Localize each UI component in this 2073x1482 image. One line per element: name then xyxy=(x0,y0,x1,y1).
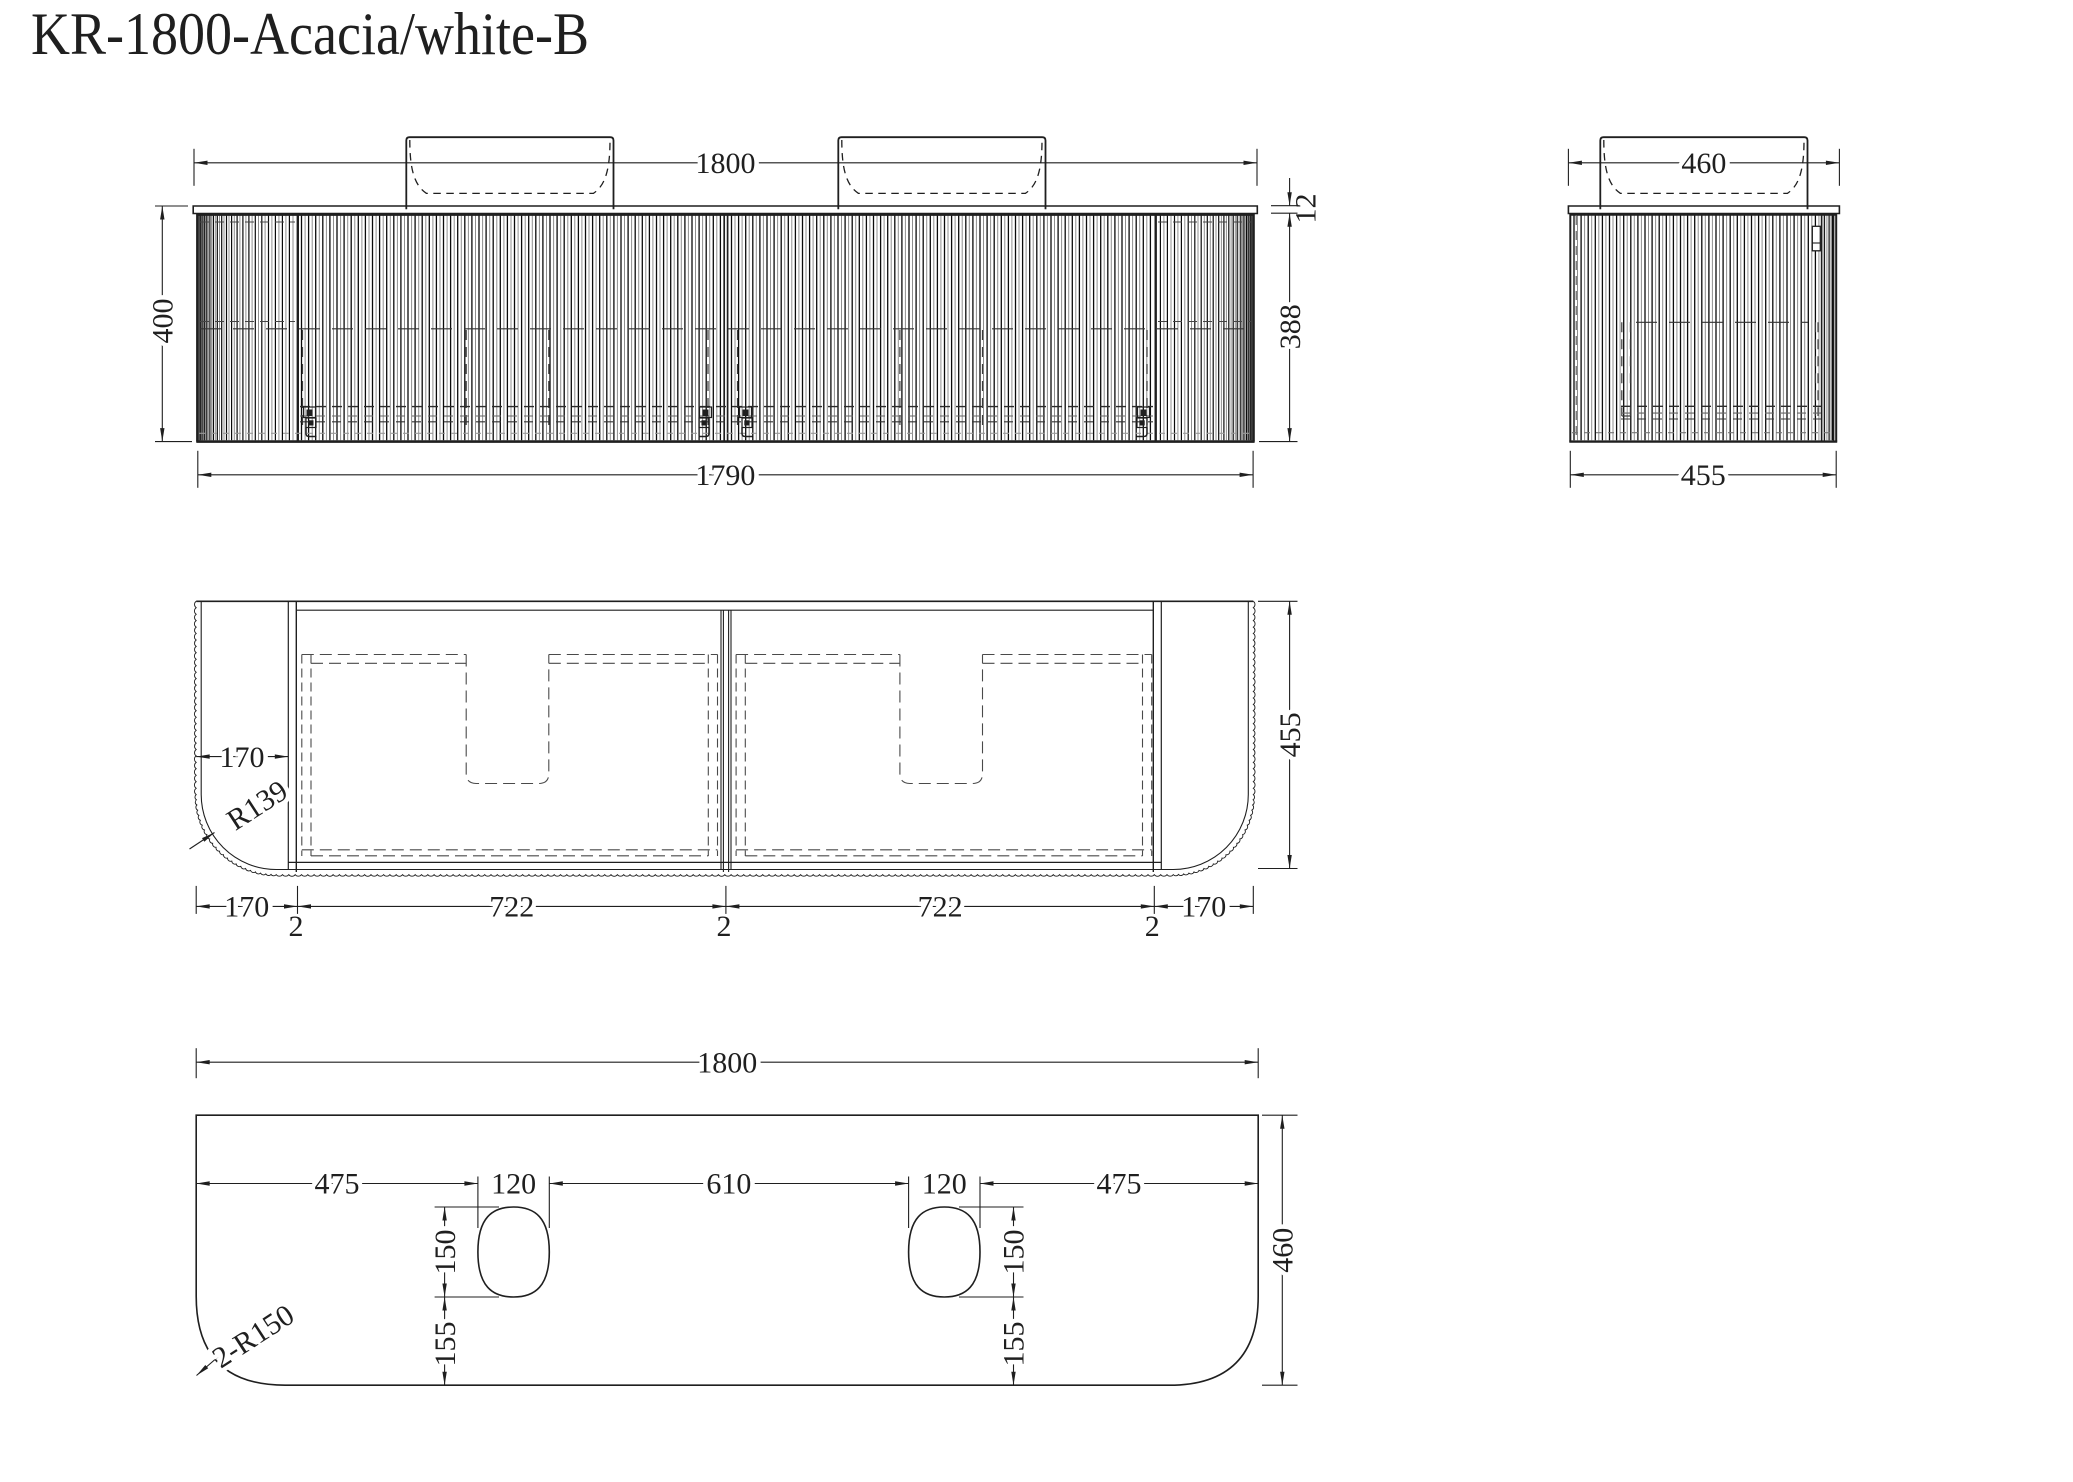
svg-text:1800: 1800 xyxy=(696,147,756,180)
svg-text:12: 12 xyxy=(1290,194,1323,224)
svg-text:475: 475 xyxy=(1097,1168,1142,1201)
svg-text:170: 170 xyxy=(220,741,265,774)
svg-text:155: 155 xyxy=(429,1322,462,1367)
svg-text:455: 455 xyxy=(1274,712,1307,757)
svg-text:1800: 1800 xyxy=(697,1046,757,1079)
svg-text:460: 460 xyxy=(1681,147,1726,180)
svg-text:475: 475 xyxy=(315,1168,360,1201)
svg-text:120: 120 xyxy=(922,1168,967,1201)
svg-text:155: 155 xyxy=(998,1322,1031,1367)
svg-text:455: 455 xyxy=(1681,459,1726,492)
svg-text:150: 150 xyxy=(429,1230,462,1275)
svg-text:150: 150 xyxy=(998,1230,1031,1275)
svg-text:KR-1800-Acacia/white-B: KR-1800-Acacia/white-B xyxy=(31,1,589,67)
svg-text:170: 170 xyxy=(224,891,269,924)
svg-text:170: 170 xyxy=(1181,891,1226,924)
svg-text:388: 388 xyxy=(1274,304,1307,349)
svg-text:2: 2 xyxy=(717,910,732,943)
svg-text:722: 722 xyxy=(489,891,534,924)
svg-text:2: 2 xyxy=(289,910,304,943)
svg-text:400: 400 xyxy=(147,299,180,344)
svg-text:610: 610 xyxy=(706,1168,751,1201)
svg-text:2: 2 xyxy=(1145,910,1160,943)
svg-text:1790: 1790 xyxy=(695,459,755,492)
svg-text:460: 460 xyxy=(1267,1228,1300,1273)
svg-text:120: 120 xyxy=(491,1168,536,1201)
svg-text:722: 722 xyxy=(918,891,963,924)
